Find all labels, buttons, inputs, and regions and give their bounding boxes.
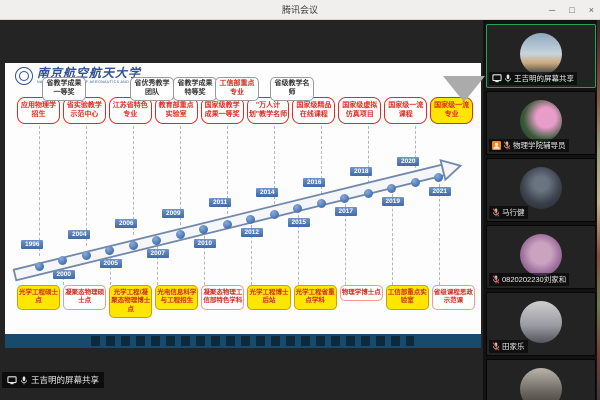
timeline-year-label: 2020 — [397, 157, 419, 166]
timeline-year-label: 2006 — [115, 219, 137, 228]
timeline-year-label: 2021 — [429, 187, 451, 196]
timeline-year-label: 2016 — [303, 178, 325, 187]
timeline-year-label: 2017 — [335, 207, 357, 216]
participant-name: 田家乐 — [502, 341, 525, 352]
timeline-dot — [82, 251, 91, 260]
screen-share-badge: 王吉明的屏幕共享 — [2, 372, 104, 388]
participant-tile[interactable]: 吴哲宇妈妈 — [486, 359, 596, 400]
timeline-year-label: 2000 — [53, 270, 75, 279]
timeline-dot — [176, 230, 185, 239]
screen-share-badge-label: 王吉明的屏幕共享 — [31, 374, 99, 386]
timeline-dot — [223, 220, 232, 229]
host-person-icon — [492, 141, 501, 150]
participant-avatar — [520, 167, 562, 209]
maximize-icon[interactable]: □ — [567, 0, 576, 20]
participant-avatar — [520, 301, 562, 343]
participant-name: 物理学院辅导员 — [513, 140, 566, 151]
timeline-year-label: 2005 — [100, 259, 122, 268]
timeline-year-label: 2011 — [209, 198, 231, 207]
timeline-dot — [387, 184, 396, 193]
timeline-dot — [340, 194, 349, 203]
timeline-dot — [152, 236, 161, 245]
timeline-year-label: 2009 — [162, 209, 184, 218]
participant-label: 物理学院辅导员 — [489, 139, 569, 152]
shared-screen-area: 南京航空航天大学 NANJING UNIVERSITY OF AERONAUTI… — [0, 20, 483, 400]
window-title: 腾讯会议 — [0, 3, 600, 16]
timeline-dot — [317, 199, 326, 208]
mic-icon — [504, 74, 512, 83]
participant-name: 马行健 — [502, 207, 525, 218]
timeline-year-label: 1996 — [21, 240, 43, 249]
participant-tile[interactable]: 马行健 — [486, 158, 596, 222]
participant-label: 马行健 — [489, 206, 528, 219]
mid-badge: 省教学成果特等奖 — [173, 77, 217, 101]
timeline-year-label: 2012 — [241, 228, 263, 237]
timeline-dot — [246, 215, 255, 224]
participant-avatar — [520, 234, 562, 276]
participant-sidebar: 王吉明的屏幕共享物理学院辅导员马行健0820202230刘家和田家乐吴哲宇妈妈 — [483, 20, 597, 400]
screen-share-icon — [492, 74, 502, 83]
presentation-slide: 南京航空航天大学 NANJING UNIVERSITY OF AERONAUTI… — [5, 63, 481, 348]
timeline: 1996200020042005200620072009201020112012… — [5, 63, 481, 348]
mic-muted-icon — [503, 141, 511, 150]
mic-muted-icon — [492, 208, 500, 217]
timeline-year-label: 2010 — [194, 239, 216, 248]
mid-badge: 省教学成果一等奖 — [42, 77, 86, 101]
participant-label: 田家乐 — [489, 340, 528, 353]
meeting-window: 腾讯会议 ─ □ × 南京航空航天大学 NANJING UNIVERSITY O… — [0, 0, 600, 400]
mic-icon — [20, 376, 28, 385]
window-controls: ─ □ × — [547, 0, 596, 20]
timeline-year-label: 2015 — [288, 218, 310, 227]
timeline-dot — [270, 210, 279, 219]
mid-badge: 省级教学名师 — [270, 77, 314, 101]
timeline-year-label: 2004 — [68, 230, 90, 239]
timeline-year-label: 2018 — [350, 167, 372, 176]
participant-label: 0820202230刘家和 — [489, 273, 569, 286]
titlebar: 腾讯会议 ─ □ × — [0, 0, 600, 20]
mic-muted-icon — [492, 342, 500, 351]
participant-label: 王吉明的屏幕共享 — [489, 72, 577, 85]
timeline-year-label: 2019 — [382, 197, 404, 206]
participant-tile[interactable]: 物理学院辅导员 — [486, 91, 596, 155]
participant-avatar — [520, 100, 562, 142]
timeline-dot — [411, 178, 420, 187]
participant-tile[interactable]: 田家乐 — [486, 292, 596, 356]
mid-badge: 工信部重点专业 — [215, 77, 259, 101]
participant-avatar — [520, 33, 562, 75]
screen-icon — [7, 376, 17, 385]
participant-avatar — [520, 368, 562, 400]
timeline-dot — [105, 246, 114, 255]
timeline-dot — [364, 189, 373, 198]
participant-tile[interactable]: 王吉明的屏幕共享 — [486, 24, 596, 88]
close-icon[interactable]: × — [587, 0, 596, 20]
participant-tile[interactable]: 0820202230刘家和 — [486, 225, 596, 289]
timeline-arrow — [5, 63, 481, 348]
mid-badge: 省优秀教学团队 — [130, 77, 174, 101]
timeline-dot — [129, 241, 138, 250]
participant-name: 王吉明的屏幕共享 — [514, 73, 574, 84]
timeline-year-label: 2014 — [256, 188, 278, 197]
mic-muted-icon — [492, 275, 500, 284]
timeline-dot — [35, 262, 44, 271]
gray-triangle-decoration — [443, 76, 485, 102]
participant-name: 0820202230刘家和 — [502, 274, 566, 285]
timeline-year-label: 2007 — [147, 249, 169, 258]
minimize-icon[interactable]: ─ — [547, 0, 557, 20]
